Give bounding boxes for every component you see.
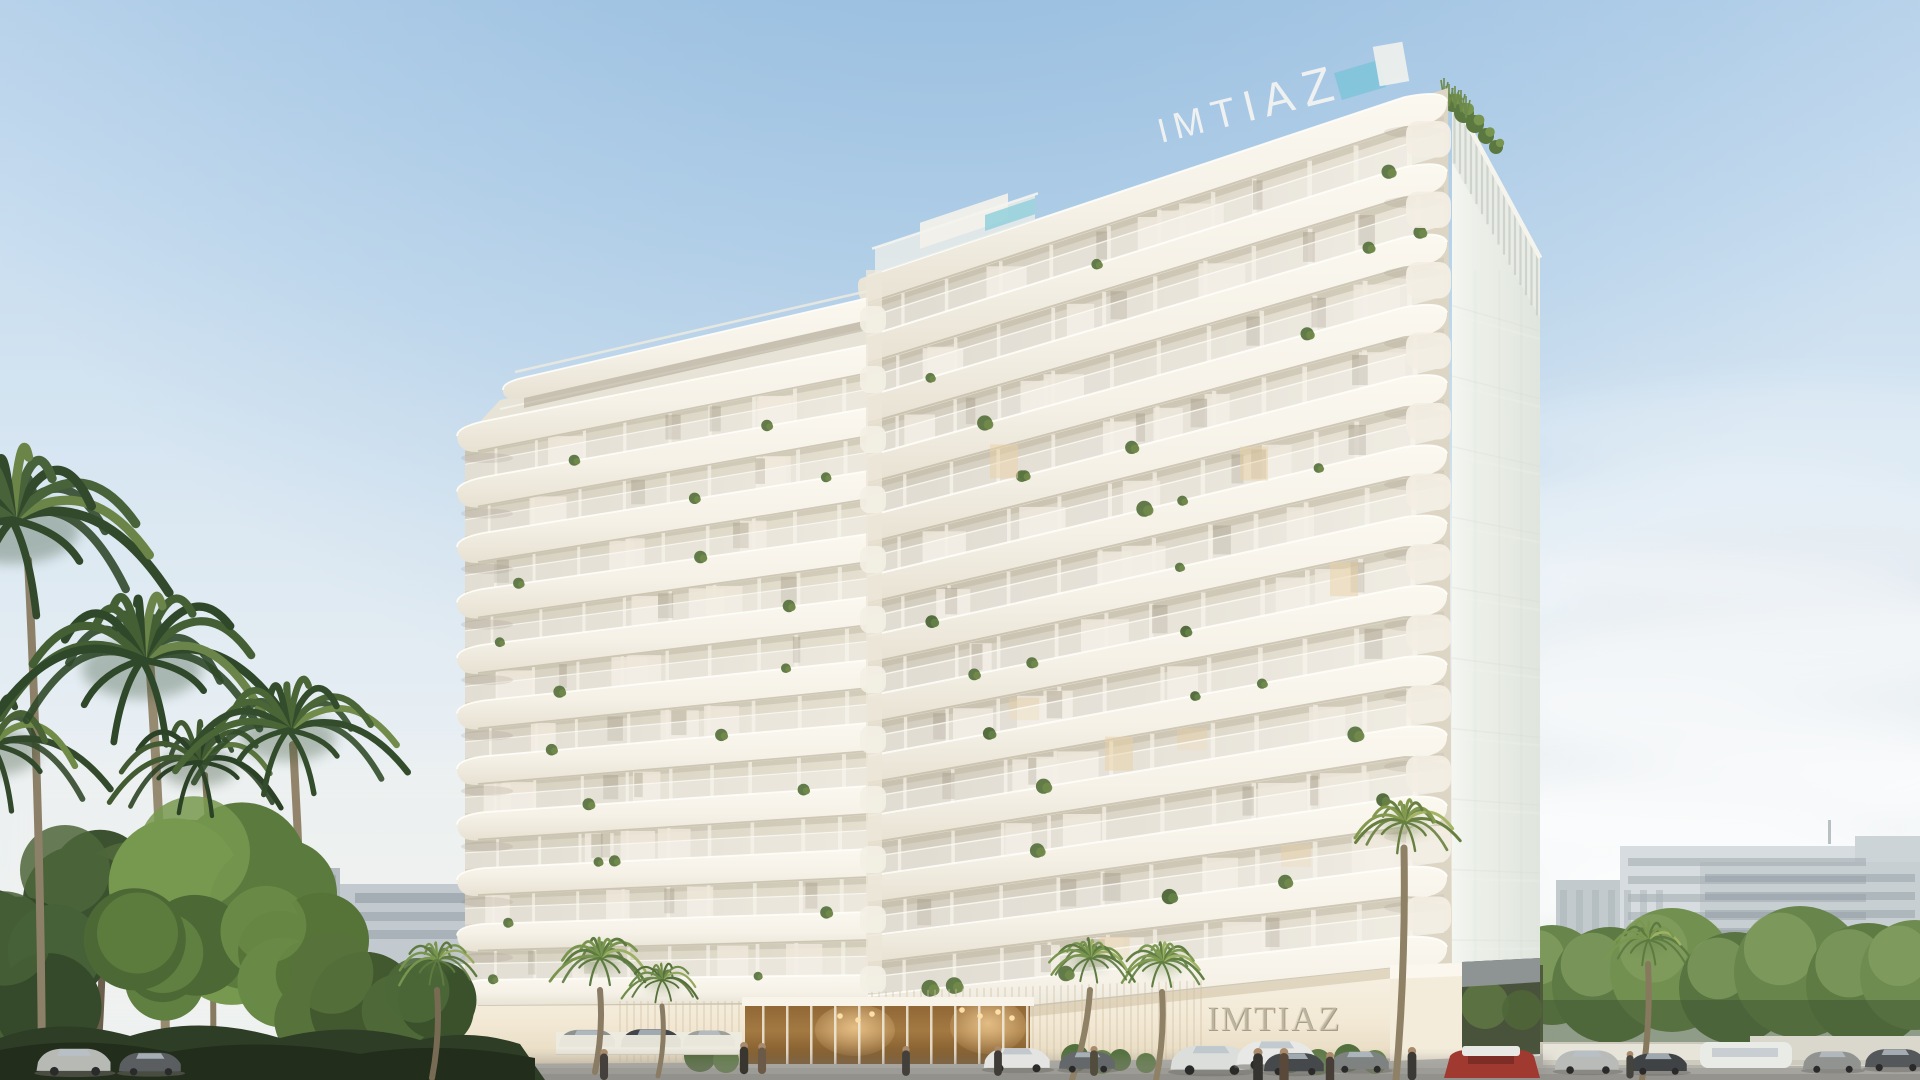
svg-text:IMTIAZ: IMTIAZ xyxy=(1207,999,1341,1038)
